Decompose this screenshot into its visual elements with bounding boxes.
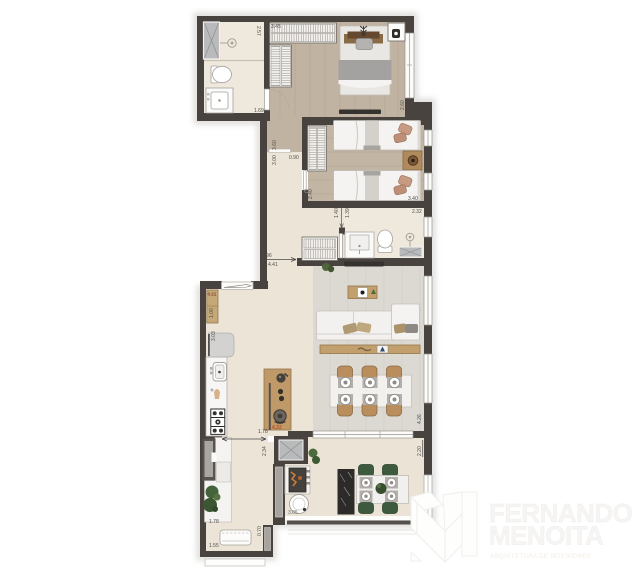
svg-text:3.60: 3.60 — [272, 140, 278, 150]
svg-text:1.55: 1.55 — [209, 543, 219, 549]
svg-text:0.90: 0.90 — [289, 155, 299, 161]
svg-text:1.78: 1.78 — [209, 519, 219, 525]
svg-text:3.05: 3.05 — [288, 510, 298, 516]
svg-text:3.00: 3.00 — [272, 155, 278, 165]
svg-text:2.34: 2.34 — [262, 446, 268, 456]
svg-text:3.03: 3.03 — [211, 331, 217, 341]
svg-text:1.78: 1.78 — [258, 429, 268, 435]
svg-text:4.32: 4.32 — [272, 425, 282, 431]
svg-text:2.60: 2.60 — [400, 100, 406, 110]
svg-text:ARQUITETURA DE INTERIORES: ARQUITETURA DE INTERIORES — [490, 554, 591, 560]
svg-text:2.57: 2.57 — [255, 26, 261, 36]
svg-text:0.70: 0.70 — [257, 526, 263, 536]
svg-text:2.32: 2.32 — [412, 209, 422, 215]
svg-text:MENOITA: MENOITA — [489, 521, 604, 551]
svg-text:1.40: 1.40 — [334, 208, 340, 218]
svg-text:3.40: 3.40 — [408, 196, 418, 202]
svg-text:2.40: 2.40 — [308, 189, 314, 199]
svg-text:3.45: 3.45 — [271, 24, 281, 30]
svg-text:1.00: 1.00 — [209, 308, 215, 318]
svg-text:0.21: 0.21 — [208, 292, 217, 297]
svg-text:4.41: 4.41 — [268, 262, 278, 268]
svg-text:1.39: 1.39 — [345, 208, 351, 218]
svg-text:4.26: 4.26 — [417, 414, 423, 424]
svg-text:2.20: 2.20 — [417, 446, 423, 456]
svg-text:1.96: 1.96 — [262, 253, 272, 259]
svg-text:1.69: 1.69 — [254, 108, 264, 114]
